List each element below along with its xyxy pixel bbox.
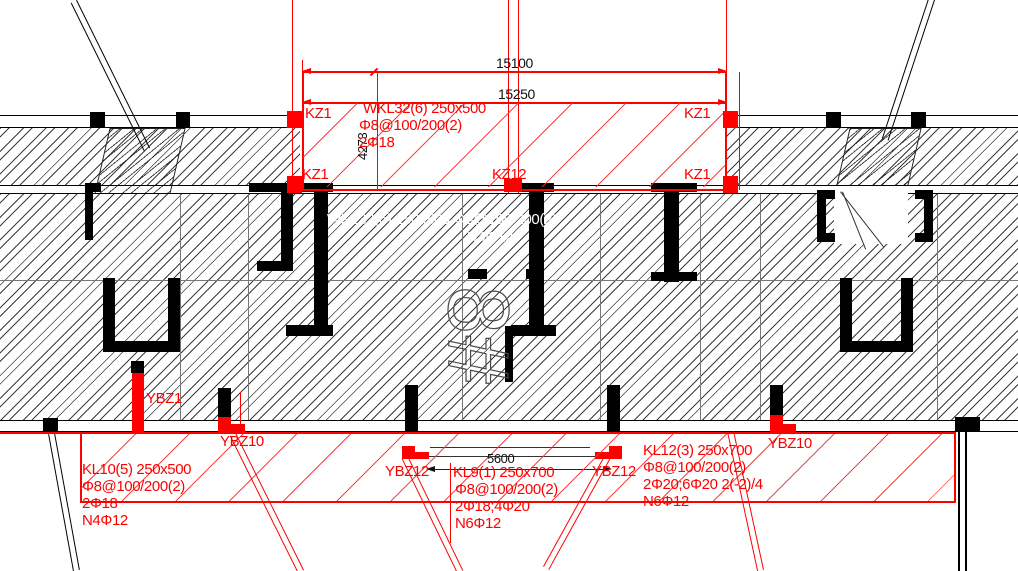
beam-label-kl10: Φ8@100/200(2) [82, 479, 185, 495]
beam-label-wkl32: 2Φ18 [359, 135, 394, 151]
wall-segment [257, 261, 293, 271]
beam-label-kl10: 2Φ18 [82, 496, 117, 512]
dim-text-15250: 15250 [498, 86, 535, 102]
wall-line [726, 127, 1018, 128]
wall-segment [168, 278, 180, 352]
wall-segment [218, 388, 231, 418]
wall-segment [286, 325, 333, 336]
column-square [90, 112, 105, 128]
wall-segment [770, 385, 783, 417]
wall-line [965, 432, 967, 571]
beam-label-kl10: N4Φ12 [82, 513, 128, 529]
column-label-kz12: KZ12 [492, 167, 526, 183]
beam-label-kl9: 2Φ18;4Φ20 [455, 499, 530, 515]
column-block-kz1 [723, 111, 738, 128]
boundary-column-ybz10 [770, 424, 796, 432]
panel-line [0, 280, 1018, 281]
door-jamb [915, 233, 933, 242]
wall-line [0, 420, 1018, 421]
wall-segment [314, 187, 328, 331]
grid-line [292, 0, 293, 190]
beam-label-kl12: 2Φ20;6Φ20 2(-2)/4 [643, 477, 763, 493]
wall-segment [529, 187, 544, 331]
beam-label-kl12: Φ8@100/200(2) [643, 460, 746, 476]
leader-line [240, 392, 241, 432]
wall-segment [131, 361, 144, 373]
panel-line [700, 194, 701, 420]
wall-segment [405, 385, 418, 433]
door-opening [834, 186, 908, 244]
grid-line [739, 72, 740, 190]
beam-label-kl9: KL9(1) 250x700 [453, 465, 554, 481]
door-jamb [817, 190, 835, 199]
wall-segment [955, 417, 980, 432]
leader-line [450, 463, 451, 543]
watermark-beam-label: WKL32(6) 250x500 Φ8@100/200(2) [327, 211, 557, 228]
panel-line [248, 194, 249, 420]
panel-line [760, 194, 761, 420]
structural-plan-drawing: 8# WKL32(6) 250x500 Φ8@100/200(2) N4Φ12 [0, 0, 1018, 571]
dim-text-15100: 15100 [496, 55, 533, 71]
unit-number-watermark: 8# [428, 286, 527, 386]
wall-segment [526, 269, 544, 279]
wall-segment [468, 269, 487, 279]
boundary-label-ybz12: YBZ12 [592, 464, 636, 480]
boundary-label-ybz12: YBZ12 [385, 464, 429, 480]
column-block-kz1 [287, 176, 302, 193]
door-jamb [915, 190, 933, 199]
column-square [911, 112, 926, 128]
boundary-column-ybz1 [132, 373, 144, 432]
balcony-rail-diagonal [882, 0, 935, 141]
beam-band-border [954, 432, 956, 502]
wall-segment [651, 272, 697, 281]
beam-label-wkl32: WKL32(6) 250x500 [363, 101, 486, 117]
boundary-column-ybz10 [222, 424, 245, 432]
column-block-kz1 [287, 111, 302, 128]
wall-segment [664, 187, 679, 282]
beam-zone-border [725, 71, 727, 189]
beam-label-kl9: Φ8@100/200(2) [455, 482, 558, 498]
beam-label-wkl32: Φ8@100/200(2) [359, 118, 462, 134]
column-square [176, 112, 190, 128]
wall-segment [85, 183, 93, 240]
wall-line [0, 127, 300, 128]
dimension-line-15100 [302, 71, 726, 73]
beam-label-kl12: KL12(3) 250x700 [643, 443, 752, 459]
beam-label-kl12: N6Φ12 [643, 494, 689, 510]
beam-label-kl9: N6Φ12 [455, 516, 501, 532]
panel-line [600, 194, 601, 420]
boundary-label-ybz10: YBZ10 [768, 436, 812, 452]
door-jamb [817, 233, 835, 242]
column-block-kz1 [723, 176, 738, 193]
column-square [826, 112, 841, 128]
wall-line [958, 432, 960, 571]
wall-line [0, 115, 300, 116]
beam-label-kl10: KL10(5) 250x500 [82, 462, 191, 478]
column-square [43, 418, 58, 431]
wall-segment [901, 278, 913, 352]
column-label-kz1: KZ1 [305, 106, 331, 122]
panel-line [937, 194, 938, 420]
wall-segment [281, 183, 293, 271]
boundary-label-ybz10: YBZ10 [220, 434, 264, 450]
boundary-label-ybz1: YBZ1 [146, 391, 182, 407]
column-label-kz1: KZ1 [684, 167, 710, 183]
wall-segment [607, 385, 620, 433]
watermark-beam-label: N4Φ12 [467, 229, 513, 246]
section-line-diagonal [48, 433, 80, 571]
panel-line [180, 194, 181, 420]
wall-line [726, 115, 1018, 116]
column-label-kz1: KZ1 [302, 167, 328, 183]
column-label-kz1: KZ1 [684, 106, 710, 122]
